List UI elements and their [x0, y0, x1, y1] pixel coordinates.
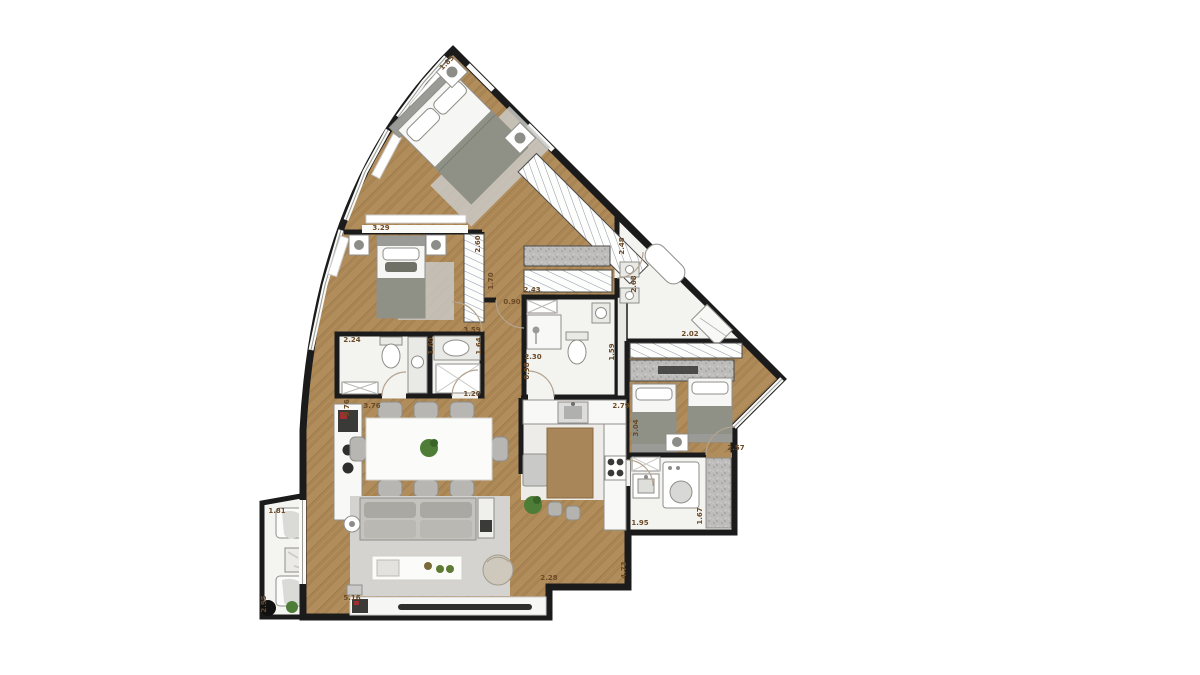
burner — [608, 459, 615, 466]
dining-chair — [450, 402, 474, 419]
dimension-label: 5.76 — [343, 399, 351, 416]
dimension-label: 1.70 — [487, 272, 495, 289]
washer-knob — [676, 466, 680, 470]
dimension-label: 4.73 — [620, 561, 628, 578]
burner — [617, 459, 624, 466]
shower-area — [527, 315, 561, 349]
dimension-label: 2.57 — [727, 444, 744, 452]
sofa-back-cushion — [420, 502, 472, 518]
dimension-label: 2.48 — [618, 237, 626, 254]
cooktop — [605, 456, 626, 480]
faucet — [571, 402, 575, 406]
stool — [548, 502, 562, 516]
dimension-label: 1.81 — [268, 507, 285, 515]
armchair — [483, 555, 513, 585]
pillow — [383, 248, 419, 260]
dimension-label: 2.24 — [343, 336, 360, 344]
burner — [608, 470, 615, 477]
dimension-label: 1.59 — [608, 343, 616, 360]
dimension-label: 2.95 — [260, 595, 268, 612]
dimension-label: 3.59 — [463, 326, 480, 334]
dimension-label: 1.95 — [631, 519, 648, 527]
floor-plan-page: 1.853.292.601.700.902.482.432.682.022.24… — [0, 0, 1200, 675]
decor-bowl — [424, 562, 432, 570]
coffee-table-books — [377, 560, 399, 576]
dimension-label: 3.29 — [372, 224, 389, 232]
pillow — [636, 388, 672, 400]
table-lamp — [354, 240, 364, 250]
decor-frame — [480, 520, 492, 532]
kitchen-island — [547, 428, 593, 498]
dining-chair — [450, 480, 474, 497]
apartment-floor-plan: 1.853.292.601.700.902.482.432.682.022.24… — [0, 0, 1200, 675]
dimension-label: 1.60 — [427, 337, 435, 354]
dimension-label: 3.04 — [632, 419, 640, 436]
service-counter — [706, 458, 731, 528]
dimension-label: 1.67 — [696, 507, 704, 524]
dining-chair — [414, 480, 438, 497]
table-lamp — [431, 240, 441, 250]
desk-tv — [658, 366, 698, 374]
bed-cushion — [385, 262, 417, 272]
washer-door — [670, 481, 692, 503]
dining-chair — [350, 437, 366, 461]
sofa-seat-cushion — [364, 520, 416, 538]
dimension-label: 1.20 — [463, 390, 480, 398]
refrigerator — [523, 454, 547, 486]
dimension-label: 2.79 — [612, 402, 629, 410]
dimension-label: 2.30 — [524, 353, 541, 361]
table-lamp — [672, 437, 682, 447]
dimension-label: 2.02 — [681, 330, 698, 338]
sink-basin — [638, 479, 654, 493]
plant-leaf — [430, 439, 438, 447]
sofa-seat-cushion — [420, 520, 472, 538]
dining-chair — [492, 437, 508, 461]
plant — [286, 601, 298, 613]
bed-blanket — [377, 278, 425, 318]
bathroom-2 — [434, 336, 480, 393]
toilet — [568, 340, 586, 364]
dimension-label: 0.90 — [503, 298, 520, 306]
plant-leaf — [533, 496, 541, 504]
stool — [566, 506, 580, 520]
window-ledge — [366, 215, 466, 223]
sink — [412, 356, 424, 368]
dimension-label: 0.98 — [523, 362, 531, 379]
dimension-label: 1.64 — [475, 337, 483, 354]
dimension-label: 5.16 — [343, 594, 360, 602]
kitchen — [523, 400, 626, 530]
decor-plant — [446, 565, 454, 573]
sink — [626, 266, 634, 274]
dining-chair — [378, 402, 402, 419]
faucet — [644, 475, 648, 479]
dining-chair — [414, 402, 438, 419]
dining-chair — [378, 480, 402, 497]
decor-plant — [436, 565, 444, 573]
closet-dresser-counter — [524, 246, 610, 266]
dimension-label: 2.60 — [474, 235, 482, 252]
toilet-tank — [566, 332, 588, 340]
dimension-label: 2.28 — [540, 574, 557, 582]
bed-blanket — [688, 406, 732, 434]
dimension-label: 2.43 — [523, 286, 540, 294]
sofa-back-cushion — [364, 502, 416, 518]
dimension-label: 2.68 — [630, 275, 638, 292]
table-lamp — [349, 521, 355, 527]
sink — [596, 308, 607, 319]
sink — [443, 340, 469, 356]
sink-basin — [564, 406, 582, 419]
door-opening — [382, 394, 406, 399]
door-opening — [528, 395, 554, 400]
wardrobe-hatched — [630, 343, 742, 358]
pillow — [692, 382, 728, 394]
washer-knob — [668, 466, 672, 470]
bar-burner — [343, 463, 354, 474]
dimension-label: 3.76 — [363, 402, 380, 410]
burner — [617, 470, 624, 477]
bed-headboard — [377, 236, 425, 246]
toilet — [382, 344, 400, 368]
door-opening — [706, 453, 732, 458]
television — [398, 604, 532, 610]
